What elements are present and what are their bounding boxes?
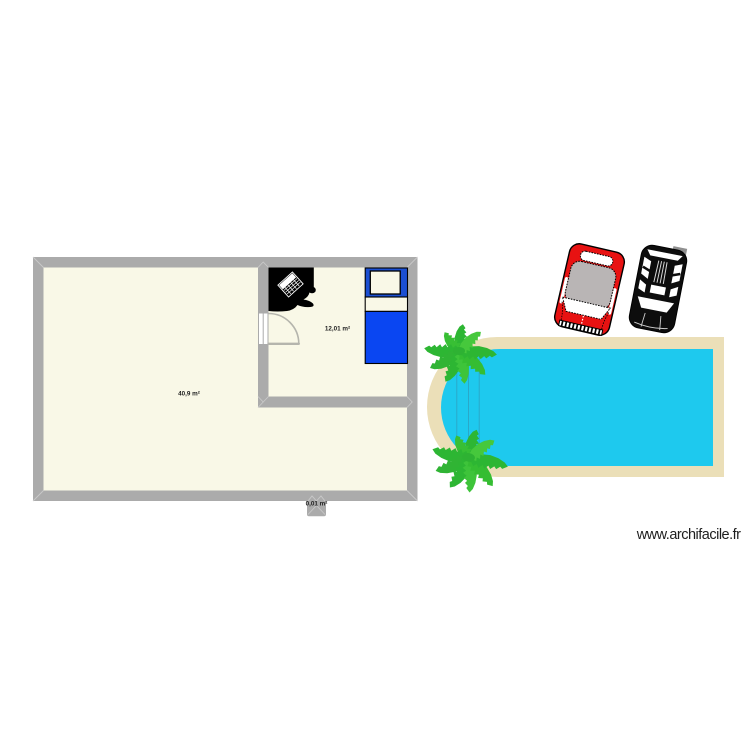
svg-text:40,9 m²: 40,9 m² [178,390,200,397]
svg-text:12,01 m²: 12,01 m² [325,326,350,333]
svg-text:www.archifacile.fr: www.archifacile.fr [636,527,741,543]
svg-text:0,01 m²: 0,01 m² [306,501,328,508]
